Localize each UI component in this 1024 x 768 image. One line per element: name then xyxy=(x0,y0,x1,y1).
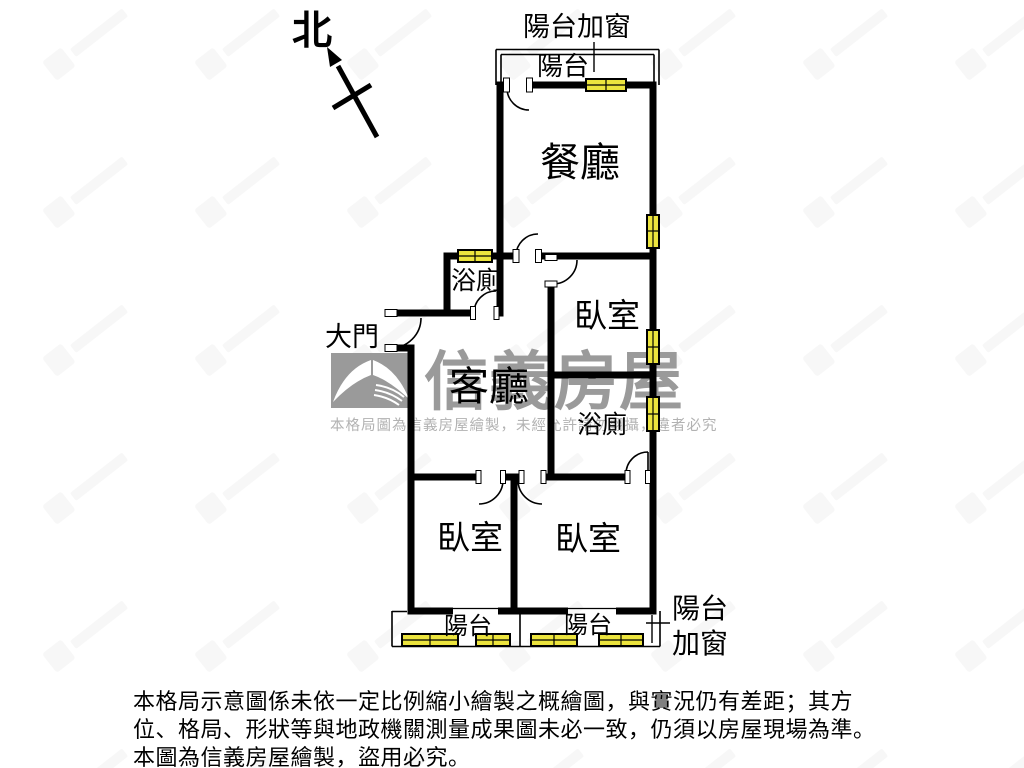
label-bath-upper: 浴廁 xyxy=(451,267,501,295)
label-entrance: 大門 xyxy=(325,322,379,352)
label-bedroom-upper: 臥室 xyxy=(574,298,640,335)
disclaimer-line-1: 本格局示意圖係未依一定比例縮小繪製之概繪圖，與實況仍有差距；其方 xyxy=(133,688,923,716)
label-bath-lower: 浴廁 xyxy=(577,411,627,439)
disclaimer-line-3: 本圖為信義房屋繪製，盜用必究。 xyxy=(133,744,923,768)
label-balcony-bottom-left: 陽台 xyxy=(444,613,492,640)
label-balcony-top: 陽台 xyxy=(537,52,589,81)
label-balcony-right-note-1: 陽台 xyxy=(672,593,728,625)
label-bedroom-right: 臥室 xyxy=(555,521,621,558)
floorplan-drawing: 信義房屋 本格局圖為信義房屋繪製，未經允許請勿翻攝，違者必究 北 xyxy=(0,0,1024,768)
label-balcony-bottom-right: 陽台 xyxy=(564,612,612,639)
label-living-room: 客廳 xyxy=(449,364,529,409)
north-label: 北 xyxy=(292,8,332,53)
floorplan-page: 信義房屋 本格局圖為信義房屋繪製，未經允許請勿翻攝，違者必究 北 xyxy=(0,0,1024,768)
disclaimer-line-2: 位、格局、形狀等與地政機關測量成果圖未必一致，仍須以房屋現場為準。 xyxy=(133,716,923,744)
window-right-wall-2 xyxy=(647,330,659,364)
label-balcony-right-note-2: 加窗 xyxy=(672,628,728,660)
label-balcony-top-note: 陽台加窗 xyxy=(523,12,631,42)
window-bath-upper xyxy=(458,250,492,262)
disclaimer-text: 本格局示意圖係未依一定比例縮小繪製之概繪圖，與實況仍有差距；其方 位、格局、形狀… xyxy=(133,688,923,768)
window-top-wall xyxy=(586,79,626,91)
label-dining-room: 餐廳 xyxy=(540,140,620,185)
window-right-wall-3 xyxy=(647,397,659,431)
window-right-wall-1 xyxy=(647,215,659,248)
label-bedroom-left: 臥室 xyxy=(437,520,503,557)
